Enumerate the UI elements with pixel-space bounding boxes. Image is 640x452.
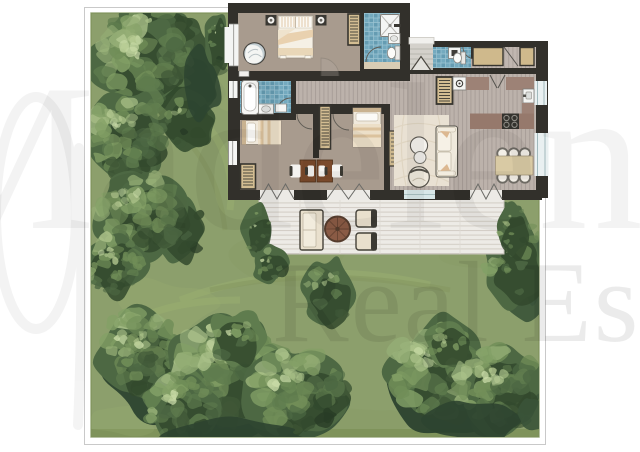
- svg-text:Real Estate: Real Estate: [272, 239, 640, 366]
